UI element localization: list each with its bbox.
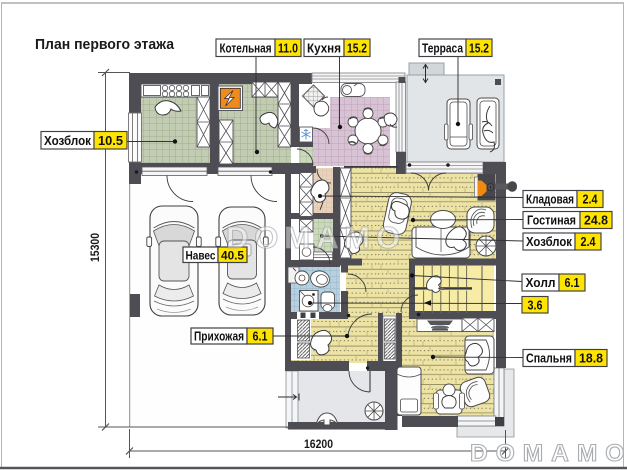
svg-text:24.8: 24.8 <box>584 213 608 228</box>
svg-text:18.8: 18.8 <box>579 351 603 366</box>
svg-text:11.0: 11.0 <box>278 41 298 56</box>
svg-text:DOMAMO: DOMAMO <box>470 440 627 467</box>
svg-text:15.2: 15.2 <box>469 41 489 56</box>
svg-text:Навес: Навес <box>186 248 216 262</box>
svg-text:6.1: 6.1 <box>253 330 268 344</box>
svg-text:План первого этажа: План первого этажа <box>35 36 175 53</box>
svg-text:Котельная: Котельная <box>220 41 272 56</box>
svg-text:Кухня: Кухня <box>307 41 341 56</box>
svg-text:Холл: Холл <box>526 275 556 290</box>
svg-text:2.4: 2.4 <box>583 192 599 207</box>
svg-text:15300: 15300 <box>90 233 102 262</box>
svg-text:Хозблок: Хозблок <box>526 234 572 249</box>
svg-text:Спальня: Спальня <box>526 351 572 366</box>
svg-text:Прихожая: Прихожая <box>194 330 244 344</box>
svg-text:Кладовая: Кладовая <box>526 192 574 207</box>
svg-text:15.2: 15.2 <box>347 41 367 56</box>
svg-text:6.1: 6.1 <box>565 275 580 290</box>
svg-text:DOMAMO: DOMAMO <box>226 220 406 255</box>
svg-text:Гостиная: Гостиная <box>527 213 576 228</box>
svg-text:Терраса: Терраса <box>422 41 464 56</box>
svg-text:Хозблок: Хозблок <box>44 133 91 148</box>
svg-text:16200: 16200 <box>304 439 333 451</box>
svg-text:10.5: 10.5 <box>98 133 123 148</box>
svg-text:2.4: 2.4 <box>581 234 597 249</box>
svg-text:3.6: 3.6 <box>528 297 543 312</box>
